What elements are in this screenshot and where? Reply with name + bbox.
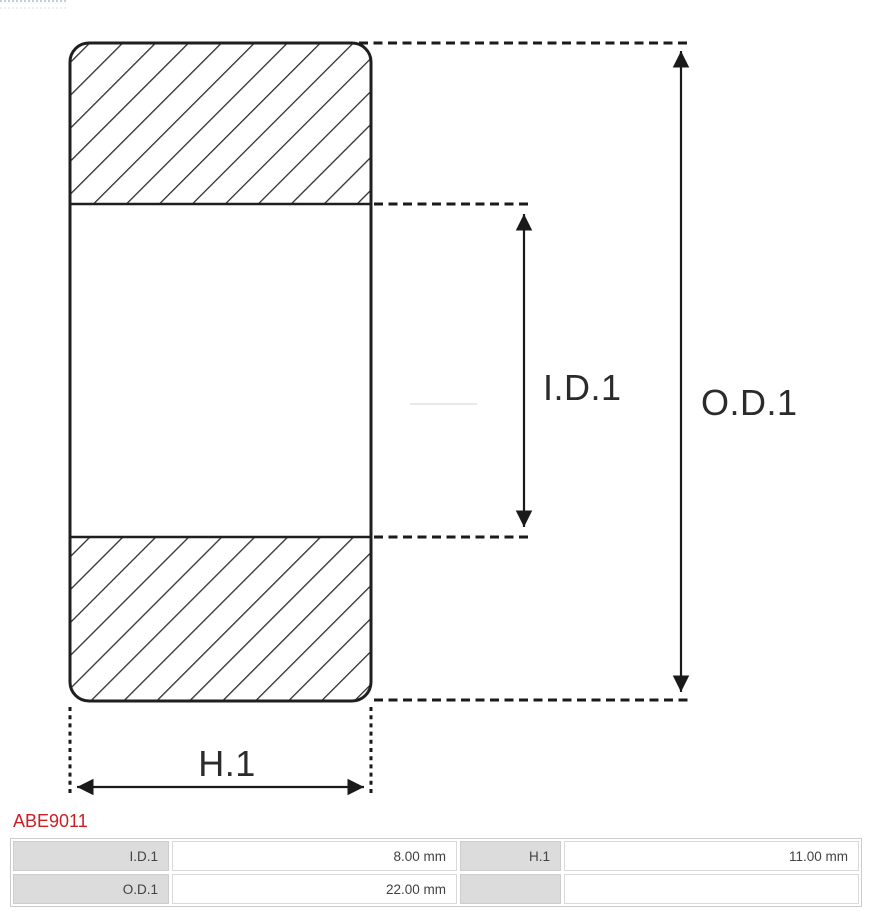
- ring-hatched-sections: [70, 43, 371, 701]
- spec-table: I.D.1 8.00 mm H.1 11.00 mm O.D.1 22.00 m…: [10, 838, 862, 907]
- spec-value-cell: 11.00 mm: [564, 841, 859, 871]
- spec-value-cell: 22.00 mm: [172, 874, 457, 904]
- spec-value-cell: [564, 874, 859, 904]
- outer-ring-bottom-section: [70, 537, 371, 701]
- height-label: H.1: [198, 743, 256, 784]
- inner-diameter-label: I.D.1: [543, 367, 622, 408]
- outer-diameter-label: O.D.1: [701, 382, 798, 423]
- spec-value-cell: 8.00 mm: [172, 841, 457, 871]
- spec-label-cell: I.D.1: [13, 841, 169, 871]
- spec-label-cell: O.D.1: [13, 874, 169, 904]
- product-code-link[interactable]: ABE9011: [13, 811, 88, 832]
- bearing-cross-section-diagram: I.D.1 O.D.1 H.1: [0, 0, 871, 808]
- product-drawing-page: I.D.1 O.D.1 H.1 ABE9011 I.D.1 8.00 mm H.…: [0, 0, 871, 913]
- spec-label-cell: [460, 874, 561, 904]
- outer-ring-top-section: [70, 43, 371, 204]
- spec-label-cell: H.1: [460, 841, 561, 871]
